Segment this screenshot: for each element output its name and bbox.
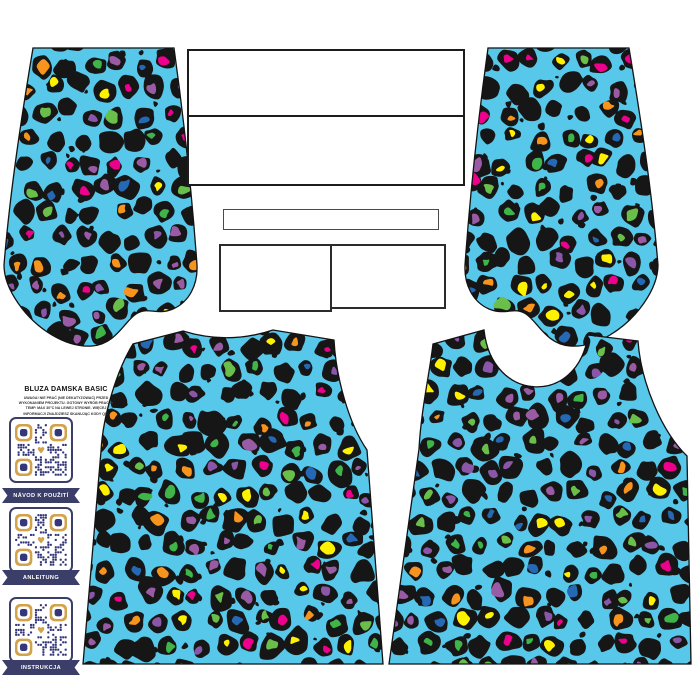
pattern-instructions: UWAGA! NIE PRAĆ (NIE DEKATYZOWAĆ) PRZED …	[4, 396, 128, 417]
cuff-rectangle-left	[219, 244, 332, 312]
pattern-title: BLUZA DAMSKA BASIC	[4, 386, 128, 393]
qr-card-anleitung: ♥	[9, 507, 73, 573]
piece-body-back	[56, 302, 402, 688]
qr-ribbon-label: INSTRUKCJA	[2, 660, 80, 675]
qr-card-instrukcja: ♥	[9, 597, 73, 663]
pattern-info: BLUZA DAMSKA BASIC UWAGA! NIE PRAĆ (NIE …	[4, 386, 128, 417]
qr-card-navod: ♥	[9, 417, 73, 483]
piece-body-front	[364, 303, 700, 685]
band-rectangle-bottom	[187, 115, 465, 186]
heart-icon: ♥	[37, 536, 45, 546]
qr-ribbon-label: NÁVOD K POUŽITÍ	[2, 488, 80, 503]
heart-icon: ♥	[37, 446, 45, 456]
qr-code-icon: ♥	[15, 514, 67, 566]
cuff-rectangle-right	[330, 244, 446, 309]
heart-icon: ♥	[37, 626, 45, 636]
neckband-rectangle	[223, 209, 439, 230]
band-rectangle-top	[187, 49, 465, 117]
piece-sleeve-right	[438, 24, 680, 355]
qr-code-icon: ♥	[15, 424, 67, 476]
qr-ribbon-label: ANLEITUNG	[2, 570, 80, 585]
pattern-sheet: BLUZA DAMSKA BASIC UWAGA! NIE PRAĆ (NIE …	[0, 0, 700, 700]
qr-code-icon: ♥	[15, 604, 67, 656]
